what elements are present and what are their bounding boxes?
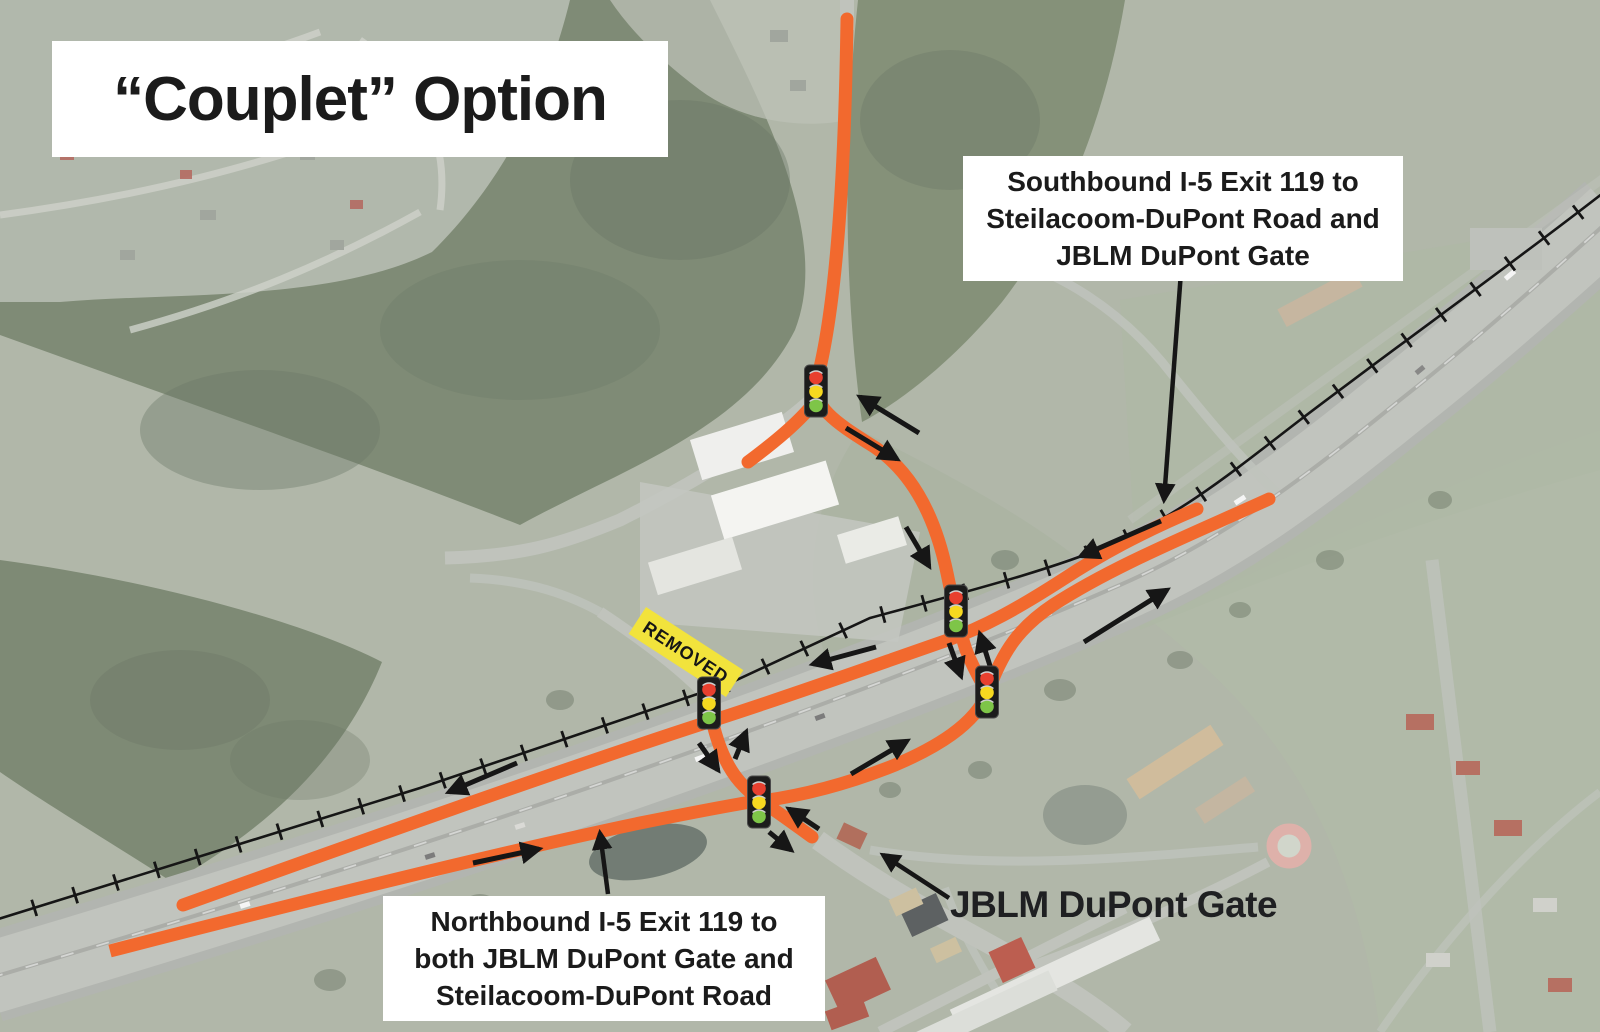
- callout-line: JBLM DuPont Gate: [969, 237, 1397, 274]
- label-jblm-dupont-gate: JBLM DuPont Gate: [950, 884, 1277, 926]
- traffic-light-icon: [945, 585, 968, 637]
- traffic-light-icon: [976, 666, 999, 718]
- callout-northbound: Northbound I-5 Exit 119 to both JBLM DuP…: [383, 896, 825, 1021]
- callout-line: Steilacoom-DuPont Road and: [969, 200, 1397, 237]
- callout-line: both JBLM DuPont Gate and: [389, 940, 819, 977]
- traffic-light-icon: [748, 776, 771, 828]
- traffic-light-icon: [698, 677, 721, 729]
- couplet-option-map: REMOVED “Couplet” Option: [0, 0, 1600, 1032]
- callout-southbound: Southbound I-5 Exit 119 to Steilacoom-Du…: [963, 156, 1403, 281]
- callout-line: Northbound I-5 Exit 119 to: [389, 903, 819, 940]
- callout-line: Southbound I-5 Exit 119 to: [969, 163, 1397, 200]
- callout-line: Steilacoom-DuPont Road: [389, 977, 819, 1014]
- traffic-light-icon: [805, 365, 828, 417]
- page-title: “Couplet” Option: [52, 41, 668, 157]
